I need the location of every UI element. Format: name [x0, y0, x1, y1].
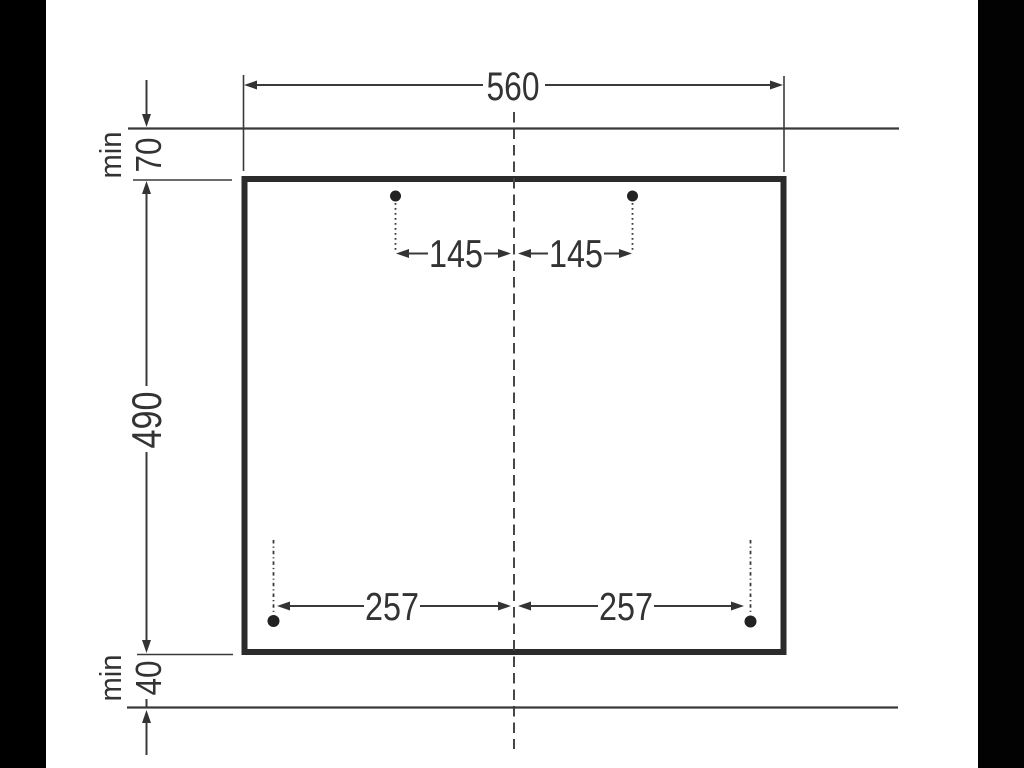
- svg-text:560: 560: [487, 65, 540, 109]
- svg-text:70: 70: [128, 138, 169, 173]
- svg-text:257: 257: [599, 586, 653, 629]
- svg-text:490: 490: [123, 392, 170, 449]
- svg-text:257: 257: [365, 586, 419, 629]
- svg-text:145: 145: [549, 233, 603, 276]
- svg-text:min: min: [93, 655, 128, 702]
- svg-text:min: min: [93, 132, 128, 179]
- svg-text:145: 145: [429, 233, 483, 276]
- svg-text:40: 40: [128, 661, 169, 696]
